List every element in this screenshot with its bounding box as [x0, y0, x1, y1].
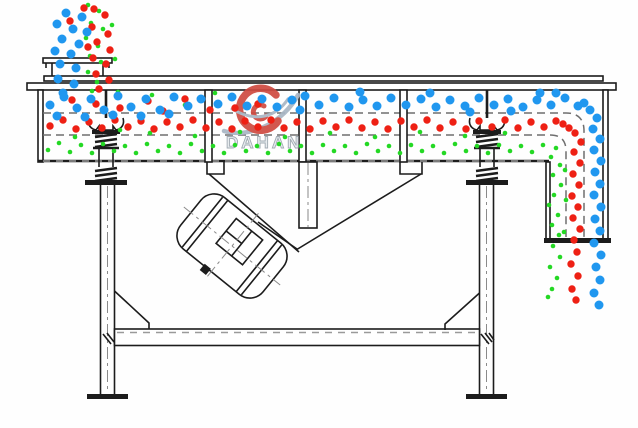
particle-green — [420, 149, 425, 154]
particle-red — [569, 214, 576, 221]
particle-red — [254, 123, 261, 130]
particle-green — [193, 134, 198, 139]
particle-green — [552, 193, 557, 198]
spring-coils-lower — [95, 168, 117, 181]
particle-red — [397, 117, 404, 124]
particle-blue — [72, 64, 81, 73]
particle-red — [572, 296, 579, 303]
spring-guides — [480, 148, 494, 167]
particle-blue — [590, 146, 599, 155]
particle-blue — [70, 80, 79, 89]
particle-green — [46, 148, 51, 153]
particle-blue — [56, 60, 65, 69]
particles-blue — [46, 9, 606, 310]
particle-blue — [547, 101, 556, 110]
particle-green — [73, 135, 78, 140]
particle-green — [266, 151, 271, 156]
support-leg-right — [466, 185, 507, 399]
particle-blue — [53, 112, 62, 121]
particle-blue — [580, 99, 589, 108]
particle-red — [568, 285, 575, 292]
particle-red — [567, 260, 574, 267]
particle-blue — [596, 276, 605, 285]
particle-red — [565, 124, 572, 131]
particle-blue — [62, 9, 71, 18]
particle-green — [90, 151, 95, 156]
particle-green — [497, 143, 502, 148]
particle-blue — [402, 101, 411, 110]
particle-red — [124, 123, 131, 130]
particle-blue — [373, 102, 382, 111]
particle-red — [267, 116, 274, 123]
particle-blue — [597, 157, 606, 166]
particle-red — [68, 96, 75, 103]
particle-blue — [490, 101, 499, 110]
spring-coils-upper — [95, 134, 117, 147]
particle-red — [475, 117, 482, 124]
particle-green — [57, 141, 62, 146]
chute-left-wall — [546, 162, 550, 239]
particle-red — [92, 70, 99, 77]
particle-blue — [595, 301, 604, 310]
particle-green — [68, 150, 73, 155]
particle-blue — [142, 95, 151, 104]
particle-green — [376, 149, 381, 154]
particle-green — [123, 144, 128, 149]
particle-blue — [69, 25, 78, 34]
particle-red — [228, 125, 235, 132]
particle-red — [423, 116, 430, 123]
particle-red — [280, 124, 287, 131]
top-rail-upper — [44, 76, 603, 81]
spring-coils-lower — [476, 168, 498, 181]
gusset-left — [115, 291, 150, 329]
particle-blue — [507, 107, 516, 116]
particle-blue — [54, 75, 63, 84]
particle-green — [365, 142, 370, 147]
particle-blue — [590, 289, 599, 298]
particle-blue — [590, 191, 599, 200]
particle-green — [113, 57, 118, 62]
particle-green — [238, 130, 243, 135]
particle-green — [398, 151, 403, 156]
particle-blue — [83, 28, 92, 37]
particle-red — [436, 124, 443, 131]
particle-red — [462, 125, 469, 132]
particle-green — [145, 142, 150, 147]
particle-red — [93, 38, 100, 45]
particle-green — [101, 27, 106, 32]
particle-red — [215, 118, 222, 125]
particle-green — [541, 143, 546, 148]
particle-red — [101, 11, 108, 18]
particle-blue — [596, 180, 605, 189]
particle-red — [241, 117, 248, 124]
particle-red — [105, 76, 112, 83]
particle-red — [104, 30, 111, 37]
particle-blue — [589, 125, 598, 134]
particle-red — [163, 118, 170, 125]
particle-blue — [137, 112, 146, 121]
particle-green — [79, 143, 84, 148]
particle-red — [206, 106, 213, 113]
particle-green — [563, 168, 568, 173]
particle-green — [332, 149, 337, 154]
particle-green — [554, 146, 559, 151]
particle-red — [90, 5, 97, 12]
particle-green — [556, 213, 561, 218]
particle-red — [202, 124, 209, 131]
particle-blue — [597, 203, 606, 212]
particle-blue — [417, 95, 426, 104]
particle-red — [488, 123, 495, 130]
particle-red — [410, 123, 417, 130]
particle-red — [527, 118, 534, 125]
particle-blue — [475, 94, 484, 103]
particle-blue — [592, 263, 601, 272]
particle-blue — [81, 113, 90, 122]
leg-foot — [87, 394, 128, 399]
particle-blue — [596, 135, 605, 144]
particle-green — [321, 143, 326, 148]
particle-green — [134, 151, 139, 156]
particle-red — [576, 159, 583, 166]
particle-blue — [597, 251, 606, 260]
particle-green — [508, 149, 513, 154]
particle-blue — [184, 102, 193, 111]
particle-green — [550, 287, 555, 292]
particle-green — [354, 151, 359, 156]
particle-blue — [591, 168, 600, 177]
particle-red — [293, 118, 300, 125]
particle-blue — [288, 96, 297, 105]
spring-flange — [85, 180, 127, 185]
support-leg-left — [87, 185, 128, 399]
particle-red — [371, 118, 378, 125]
particle-blue — [590, 239, 599, 248]
particle-green — [442, 151, 447, 156]
particle-red — [384, 125, 391, 132]
particle-red — [501, 116, 508, 123]
particle-blue — [387, 94, 396, 103]
spring-flange — [466, 180, 508, 185]
particle-red — [106, 46, 113, 53]
particle-green — [156, 149, 161, 154]
particle-blue — [536, 89, 545, 98]
particle-green — [283, 135, 288, 140]
particles-green — [46, 3, 569, 300]
particle-red — [150, 125, 157, 132]
particle-blue — [75, 40, 84, 49]
particle-green — [118, 128, 123, 133]
particle-blue — [228, 93, 237, 102]
particle-red — [116, 104, 123, 111]
particle-green — [167, 144, 172, 149]
particle-red — [574, 272, 581, 279]
particle-blue — [87, 95, 96, 104]
particle-red — [66, 17, 73, 24]
particle-green — [549, 155, 554, 160]
particle-green — [222, 151, 227, 156]
particle-blue — [60, 93, 69, 102]
particle-red — [540, 123, 547, 130]
particle-green — [551, 173, 556, 178]
particle-green — [431, 144, 436, 149]
particle-green — [550, 223, 555, 228]
particle-green — [463, 134, 468, 139]
particle-green — [530, 150, 535, 155]
spring-coils-upper — [476, 134, 498, 147]
particle-green — [101, 142, 106, 147]
particle-green — [343, 144, 348, 149]
particle-green — [310, 151, 315, 156]
particle-blue — [330, 94, 339, 103]
beam-body — [115, 329, 480, 346]
particle-green — [409, 143, 414, 148]
particle-blue — [58, 35, 67, 44]
particle-green — [200, 149, 205, 154]
particle-blue — [46, 101, 55, 110]
particle-blue — [53, 20, 62, 29]
particle-green — [90, 89, 95, 94]
spring-guides — [99, 148, 113, 167]
particle-blue — [432, 103, 441, 112]
particle-red — [568, 192, 575, 199]
particle-blue — [596, 227, 605, 236]
particle-blue — [519, 103, 528, 112]
particle-green — [503, 131, 508, 136]
particle-green — [255, 144, 260, 149]
particle-blue — [114, 92, 123, 101]
particle-red — [552, 117, 559, 124]
particle-blue — [197, 95, 206, 104]
particle-red — [575, 181, 582, 188]
particle-blue — [78, 13, 87, 22]
particle-red — [231, 104, 238, 111]
particle-green — [551, 244, 556, 249]
leg-foot — [466, 394, 507, 399]
top-rail-lower — [27, 83, 616, 90]
particle-red — [189, 116, 196, 123]
particle-green — [559, 183, 564, 188]
particle-blue — [345, 103, 354, 112]
particle-green — [558, 255, 563, 260]
particle-blue — [296, 106, 305, 115]
particle-red — [449, 118, 456, 125]
screen-box — [38, 90, 608, 240]
particle-green — [475, 144, 480, 149]
particle-green — [418, 130, 423, 135]
particle-green — [233, 143, 238, 148]
vibration-motor — [157, 174, 306, 317]
particle-red — [514, 124, 521, 131]
particle-green — [189, 142, 194, 147]
particle-red — [576, 225, 583, 232]
particle-red — [573, 248, 580, 255]
particle-blue — [51, 47, 60, 56]
particle-red — [571, 129, 578, 136]
spring-cup — [469, 118, 504, 130]
particle-green — [373, 135, 378, 140]
box-right-wall — [603, 90, 608, 240]
particle-green — [547, 203, 552, 208]
particle-blue — [561, 94, 570, 103]
particle-red — [332, 123, 339, 130]
particle-red — [577, 138, 584, 145]
particle-green — [328, 131, 333, 136]
spring-assembly-left — [85, 90, 127, 185]
particle-blue — [170, 93, 179, 102]
particle-green — [562, 230, 567, 235]
particle-red — [80, 4, 87, 11]
particle-blue — [504, 95, 513, 104]
particle-red — [98, 124, 105, 131]
weld-hatch-left — [103, 333, 114, 344]
particle-red — [72, 125, 79, 132]
particle-green — [244, 149, 249, 154]
top-rails — [27, 76, 616, 90]
particle-green — [387, 144, 392, 149]
particles-red — [46, 4, 584, 303]
particle-red — [176, 123, 183, 130]
particle-green — [548, 265, 553, 270]
particle-green — [150, 93, 155, 98]
particle-blue — [67, 50, 76, 59]
weld-hatch-right — [481, 333, 494, 344]
particle-green — [288, 149, 293, 154]
particle-red — [570, 148, 577, 155]
particle-green — [299, 144, 304, 149]
particle-red — [89, 54, 96, 61]
vibrating-screen-diagram: ® DAHAN — [0, 0, 638, 428]
particle-blue — [426, 89, 435, 98]
particle-blue — [156, 106, 165, 115]
particle-green — [213, 91, 218, 96]
particle-green — [95, 80, 100, 85]
particle-blue — [466, 108, 475, 117]
particle-green — [178, 151, 183, 156]
particle-red — [95, 85, 102, 92]
particle-red — [319, 117, 326, 124]
particle-green — [86, 70, 91, 75]
particle-red — [345, 116, 352, 123]
particle-blue — [446, 96, 455, 105]
particle-red — [306, 125, 313, 132]
particle-green — [564, 198, 569, 203]
particle-green — [558, 163, 563, 168]
particle-blue — [586, 106, 595, 115]
particle-blue — [127, 103, 136, 112]
particle-blue — [165, 110, 174, 119]
particle-blue — [593, 114, 602, 123]
particle-blue — [109, 111, 118, 120]
particle-blue — [273, 103, 282, 112]
particle-blue — [100, 106, 109, 115]
particle-blue — [591, 215, 600, 224]
bracket-lug-right — [400, 162, 422, 174]
particle-green — [546, 295, 551, 300]
particle-blue — [243, 102, 252, 111]
particle-green — [519, 144, 524, 149]
particle-blue — [356, 88, 365, 97]
spring-assembly-right — [466, 90, 508, 185]
particle-blue — [258, 95, 267, 104]
diagram-linework: ® DAHAN — [0, 0, 638, 428]
bracket-lug-left — [207, 162, 224, 174]
particle-red — [84, 43, 91, 50]
particle-green — [453, 142, 458, 147]
particle-blue — [359, 96, 368, 105]
particle-red — [569, 170, 576, 177]
particle-green — [110, 23, 115, 28]
particle-blue — [214, 100, 223, 109]
particle-blue — [301, 92, 310, 101]
box-left-wall — [38, 90, 43, 162]
particle-green — [464, 149, 469, 154]
particle-red — [574, 203, 581, 210]
particle-green — [112, 149, 117, 154]
particle-green — [211, 144, 216, 149]
gusset-right — [445, 293, 480, 330]
particle-blue — [552, 89, 561, 98]
particle-blue — [73, 104, 82, 113]
particle-green — [555, 276, 560, 281]
particle-red — [46, 122, 53, 129]
base-beam — [103, 329, 494, 346]
particle-green — [277, 142, 282, 147]
particle-red — [570, 236, 577, 243]
particle-red — [358, 124, 365, 131]
particle-green — [486, 151, 491, 156]
particle-blue — [315, 101, 324, 110]
particle-red — [102, 60, 109, 67]
particle-green — [557, 233, 562, 238]
